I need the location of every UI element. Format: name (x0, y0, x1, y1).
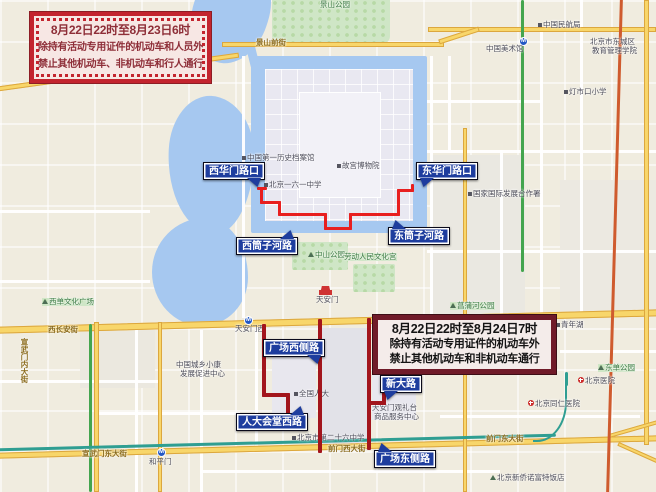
tri-icon (490, 475, 496, 480)
restricted-route-segment (397, 189, 400, 216)
metro-station-icon: M (519, 37, 528, 46)
hosp-icon (528, 400, 534, 406)
metro-station-icon: M (244, 316, 253, 325)
map-label: 发展促进中心 (180, 370, 225, 378)
map-label: 宣武门内大街 (20, 338, 29, 383)
road-callout-label: 广场西侧路 (263, 339, 325, 357)
map-label: 北京同仁医院 (528, 400, 580, 408)
notice-2-period: 8月22日22时至8月24日7时 (378, 322, 551, 337)
restricted-route-segment (411, 184, 414, 192)
map-label: 西单文化广场 (42, 298, 94, 306)
map-label: 中国城乡小康 (176, 361, 221, 369)
dot-icon (468, 192, 472, 196)
dot-icon (242, 156, 246, 160)
map-label: 天安门西 (235, 325, 265, 333)
map-label: 教育管理学院 (592, 47, 637, 55)
tri-icon (308, 252, 314, 257)
restricted-route-segment (324, 227, 352, 230)
map-label: 天安门 (316, 296, 339, 304)
map-label: 前门东大街 (486, 435, 524, 443)
map-label: 中国民航局 (538, 21, 581, 29)
map-label: 和平门 (149, 458, 172, 466)
map-label: 北京医院 (578, 377, 615, 385)
road-callout-label: 西筒子河路 (236, 237, 298, 255)
restricted-route-segment (367, 318, 371, 450)
dot-icon (556, 323, 560, 327)
notice-1-rule2: 禁止其他机动车、非机动车和行人通行 (34, 56, 207, 73)
tri-icon (42, 299, 48, 304)
metro-station-icon: M (157, 448, 166, 457)
map-label: 中山公园 (308, 251, 345, 259)
callout-pointer (290, 406, 304, 415)
road-callout-label: 人大会堂西路 (236, 413, 308, 431)
tri-icon (598, 365, 604, 370)
notice-2-rule2: 禁止其他机动车和非机动车通行 (378, 352, 551, 367)
map-label: 中国美术馆 (486, 45, 524, 53)
dot-icon (292, 436, 296, 440)
map-label: 灯市口小学 (564, 88, 607, 96)
hosp-icon (578, 377, 584, 383)
road-callout-label: 广场东侧路 (374, 450, 436, 468)
callout-pointer (420, 178, 434, 187)
map-label: 东单公园 (598, 364, 635, 372)
notice-1-rule: 除持有活动专用证件的机动车和人员外 (34, 39, 207, 56)
map-label: 北京市第二十六中学 (292, 434, 365, 442)
map-label: 景山前街 (256, 39, 286, 47)
map-label: 北京一六一中学 (264, 181, 322, 189)
road-callout-label: 西华门路口 (203, 162, 265, 180)
map-label: 菖蒲河公园 (450, 302, 495, 310)
callout-pointer (392, 220, 406, 229)
map-label: 天安门观礼台 (372, 404, 417, 412)
road-callout-label: 东筒子河路 (388, 227, 450, 245)
map-label: 北京新侨诺富特饭店 (490, 474, 565, 482)
callout-pointer (247, 178, 261, 187)
map-label: 青年湖 (556, 321, 584, 329)
callout-pointer (378, 443, 392, 452)
dot-icon (294, 392, 298, 396)
map-label: 中国第一历史档案馆 (242, 154, 315, 162)
map-label: 故宫博物院 (337, 162, 380, 170)
restricted-route-segment (278, 213, 327, 216)
notice-1-period: 8月22日22时至8月23日6时 (34, 22, 207, 39)
restricted-route-segment (349, 213, 400, 216)
dot-icon (564, 90, 568, 94)
map-label: 西长安街 (48, 326, 78, 334)
road-callout-label: 新大路 (380, 375, 422, 393)
dot-icon (538, 23, 542, 27)
callout-pointer (280, 230, 294, 239)
road-callout-label: 东华门路口 (416, 162, 478, 180)
map-canvas[interactable]: 景山公园中国民航局北京市东城区教育管理学院中国美术馆灯市口小学中国第一历史档案馆… (0, 0, 656, 492)
tri-icon (450, 303, 456, 308)
tiananmen-gate-icon (319, 286, 332, 295)
map-label: 全国人大 (294, 390, 329, 398)
map-label: 前门西大街 (328, 445, 366, 453)
map-label: 宣武门东大街 (82, 450, 127, 458)
map-label: 劳动人民文化宫 (344, 253, 397, 261)
dot-icon (337, 164, 341, 168)
map-label: 商品服务中心 (374, 413, 419, 421)
callout-pointer (384, 391, 398, 400)
map-label: 景山公园 (320, 1, 350, 9)
restriction-notice-vehicle: 8月22日22时至8月24日7时 除持有活动专用证件的机动车外 禁止其他机动车和… (373, 315, 556, 374)
map-label: 北京市东城区 (590, 38, 635, 46)
notice-2-rule: 除持有活动专用证件的机动车外 (378, 337, 551, 352)
map-label: 国家国际发展合作署 (468, 190, 541, 198)
restricted-route-segment (262, 324, 266, 397)
restriction-notice-pedestrian: 8月22日22时至8月23日6时 除持有活动专用证件的机动车和人员外 禁止其他机… (30, 12, 211, 83)
